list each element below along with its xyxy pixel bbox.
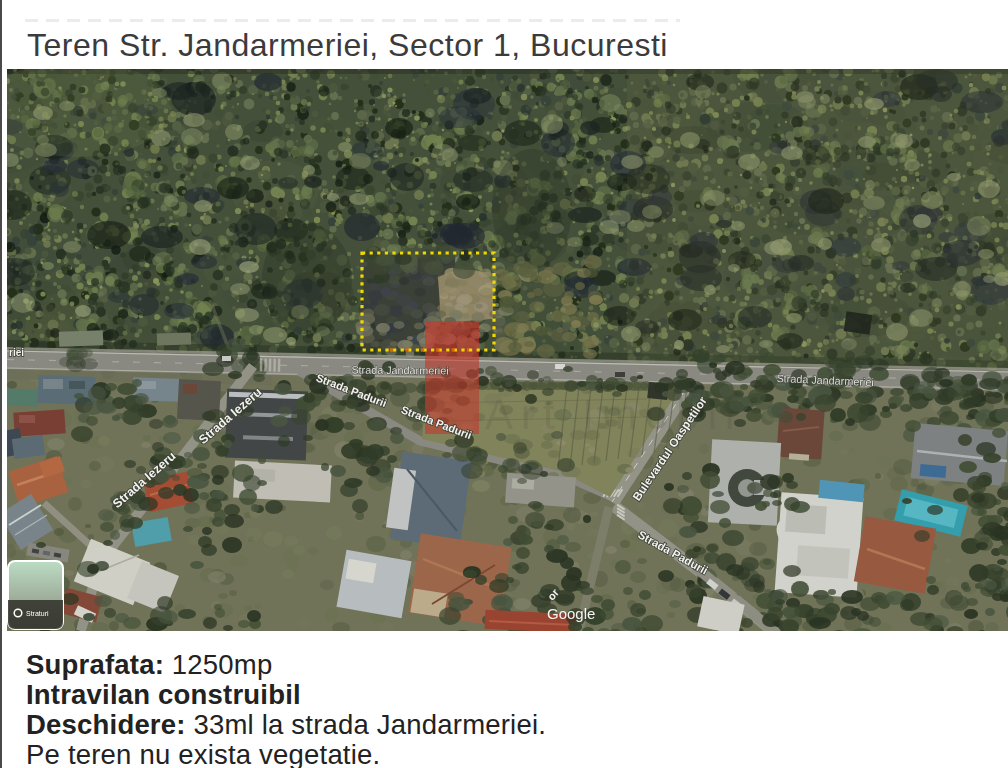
svg-text:Google: Google: [547, 605, 595, 622]
svg-text:Straturi: Straturi: [26, 610, 49, 617]
svg-text:Strada Jandarmeriei: Strada Jandarmeriei: [351, 364, 448, 377]
svg-text:riei: riei: [9, 347, 24, 358]
